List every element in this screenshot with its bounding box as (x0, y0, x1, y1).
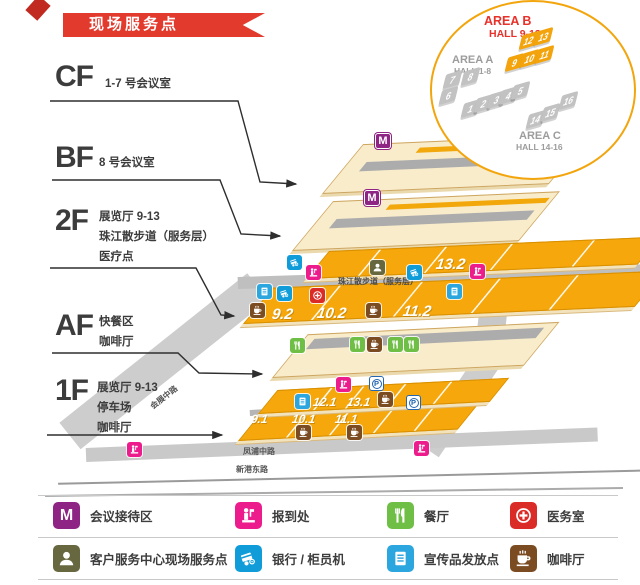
inset-hall-7: 7 (443, 70, 463, 89)
brochure-icon (295, 394, 310, 409)
meeting-reception-icon: M (364, 190, 380, 206)
restaurant-icon (388, 337, 403, 352)
coffee-icon (250, 303, 265, 318)
hall-9-1: 9.1 (250, 412, 269, 426)
medical-icon (510, 502, 537, 529)
hall-10-2: 10.2 (316, 305, 348, 322)
inset-area-c-range: HALL 14-16 (516, 142, 563, 152)
legend-item-brochure: 宣传品发放点 (387, 545, 499, 572)
legend-item-medical: 医务室 (510, 502, 585, 529)
connector-af (52, 353, 262, 374)
customer-service-icon (370, 260, 385, 275)
bf-orange-stripe (385, 198, 549, 210)
coffee-icon (378, 392, 393, 407)
inset-area-a-name: AREA A (452, 54, 493, 66)
inset-hall-6: 6 (439, 86, 459, 105)
bf-gray-stripe (329, 210, 535, 228)
floor-desc-cf: 1-7 号会议室 (105, 74, 171, 94)
hall-11-1: 11.1 (334, 412, 358, 426)
bank-atm-icon (277, 286, 292, 301)
legend-item-customer-service: 客户服务中心现场服务点 (53, 545, 228, 572)
restaurant-icon (387, 502, 414, 529)
floor-label-bf: BF (55, 141, 93, 175)
hall-9-2: 9.2 (271, 306, 294, 323)
meeting-reception-icon: M (375, 133, 391, 149)
legend-item-meeting-reception: M 会议接待区 (53, 502, 153, 529)
bank-atm-icon (287, 255, 302, 270)
registration-icon (235, 502, 262, 529)
floor-label-cf: CF (55, 60, 93, 94)
registration-icon (414, 441, 429, 456)
inset-hall-16: 16 (559, 91, 579, 110)
legend-divider (38, 579, 618, 580)
customer-service-icon (53, 545, 80, 572)
registration-icon (306, 265, 321, 280)
floor-desc-1f: 展览厅 9-13 停车场 咖啡厅 (97, 378, 158, 438)
legend-item-restaurant: 餐厅 (387, 502, 449, 529)
registration-icon (470, 264, 485, 279)
floor-label-1f: 1F (55, 374, 88, 408)
coffee-icon (296, 425, 311, 440)
service-points-map-page: 现场服务点 CF 1-7 号会议室 BF 8 号会议室 2F 展览厅 9-13 … (0, 0, 640, 585)
floor-desc-af: 快餐区 咖啡厅 (99, 312, 134, 352)
floor-label-af: AF (55, 309, 93, 343)
floor-desc-bf: 8 号会议室 (99, 153, 155, 173)
legend-divider (38, 537, 618, 538)
inset-area-c-name: AREA C (519, 130, 561, 142)
floor-desc-2f: 展览厅 9-13 珠江散步道（服务层） 医疗点 (99, 207, 214, 267)
inset-hall-15: 15 (541, 103, 561, 122)
parking-icon: P (406, 395, 421, 410)
inset-area-b-name: AREA B (484, 14, 531, 28)
brochure-icon (257, 284, 272, 299)
bank-atm-icon (407, 265, 422, 280)
hall-10-1: 10.1 (291, 412, 316, 426)
restaurant-icon (404, 337, 419, 352)
brochure-icon (387, 545, 414, 572)
brochure-icon (447, 284, 462, 299)
legend-item-bank-atm: 银行 / 柜员机 (235, 545, 345, 572)
meeting-reception-icon: M (53, 502, 80, 529)
inset-hall-5: 5 (511, 81, 531, 100)
hall-13-2: 13.2 (435, 256, 467, 273)
restaurant-icon (350, 337, 365, 352)
hall-13-1: 13.1 (346, 395, 371, 409)
coffee-icon (347, 425, 362, 440)
coffee-icon (366, 303, 381, 318)
hall-11-2: 11.2 (402, 303, 432, 320)
parking-icon: P (369, 376, 384, 391)
legend-divider (38, 495, 618, 496)
legend-item-coffee: 咖啡厅 (510, 545, 585, 572)
floor-label-2f: 2F (55, 204, 88, 238)
medical-icon (310, 288, 325, 303)
legend-item-registration: 报到处 (235, 502, 310, 529)
registration-icon (336, 377, 351, 392)
coffee-icon (367, 337, 382, 352)
registration-icon (127, 442, 142, 457)
coffee-icon (510, 545, 537, 572)
restaurant-icon (290, 338, 305, 353)
bank-atm-icon (235, 545, 262, 572)
overview-inset: AREA B HALL 9-13 AREA A HALL 1-8 AREA C … (430, 0, 636, 180)
hall-12-1: 12.1 (312, 395, 337, 409)
inset-hall-11: 11 (535, 45, 555, 64)
